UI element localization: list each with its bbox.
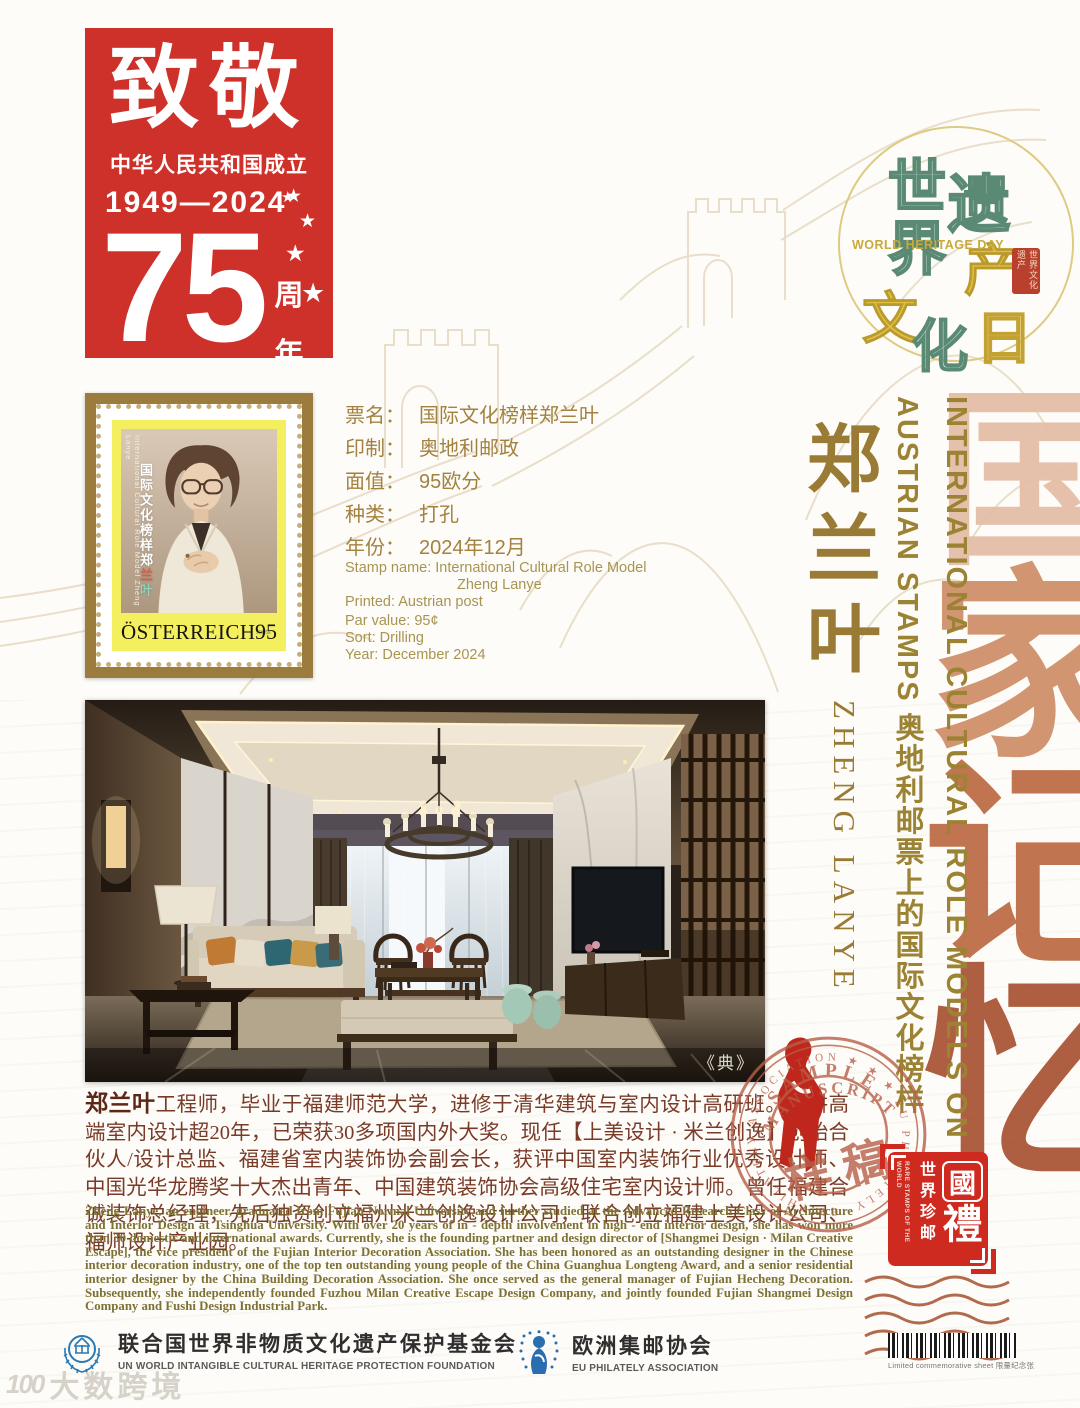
info-line: Printed: Austrian post xyxy=(345,594,685,611)
info-line: Stamp name: International Cultural Role … xyxy=(345,560,685,577)
info-row: 印制：奥地利邮政 xyxy=(345,433,675,466)
info-line: Par value: 95¢ xyxy=(345,613,685,630)
info-line: Zheng Lanye xyxy=(345,577,685,594)
info-line: Sort: Drilling xyxy=(345,630,685,647)
rare-stamps-badge: RARE STAMPS OF THE WORLD 世界珍邮 國 禮 xyxy=(888,1152,988,1266)
commemorative-stamp-poster: 国 家 记 忆 致敬 中华人民共和国成立 1949—2024★ 75 周 年 ★… xyxy=(0,0,1080,1408)
org-eu-philately: 欧洲集邮协会 EU PHILATELY ASSOCIATION xyxy=(518,1330,718,1378)
heritage-char: 化 xyxy=(912,302,968,383)
heritage-subtitle: WORLD HERITAGE DAY xyxy=(852,238,1004,252)
eu-philately-logo-icon xyxy=(518,1330,560,1378)
stamp-country-row: ÖSTERREICH 95 xyxy=(121,613,277,651)
barcode xyxy=(888,1333,1016,1358)
heritage-char: 日 xyxy=(976,294,1032,375)
watermark-text: 大数跨境 xyxy=(49,1362,185,1406)
badge-unit: 周 年 xyxy=(275,272,304,372)
badge-char-guo: 國 xyxy=(942,1161,983,1202)
badge-number-row: 75 周 年 xyxy=(85,214,333,372)
bio-name-zh: 郑兰叶 xyxy=(85,1091,156,1116)
info-row: 种类：打孔 xyxy=(345,499,675,532)
badge-main-chars: 國 禮 xyxy=(942,1161,983,1257)
artist-name-en: ZHENG LANYE xyxy=(826,700,862,995)
watermark-logo: 100 xyxy=(6,1369,43,1400)
star-icon: ★ xyxy=(281,188,294,206)
stamp-portrait: International Cultural Role Model Zheng … xyxy=(121,429,277,613)
badge-char-li: 禮 xyxy=(943,1205,983,1245)
stamp-info-zh: 票名：国际文化榜样郑兰叶 印制：奥地利邮政 面值：95欧分 种类：打孔 年份：2… xyxy=(345,400,675,565)
stamp-country: ÖSTERREICH xyxy=(121,620,256,645)
info-line: Year: December 2024 xyxy=(345,647,685,664)
barcode-block: Limited commemorative sheet 限量纪念张 xyxy=(888,1333,1038,1371)
star-icon: ★ xyxy=(301,278,325,309)
bio-paragraph-en: Zheng Lanye, an engineer, graduated from… xyxy=(85,1205,853,1314)
stamp-info-en: Stamp name: International Cultural Role … xyxy=(345,560,685,664)
site-watermark: 100 大数跨境 xyxy=(6,1362,185,1406)
headline-line1: INTERNATIONAL CULTURAL ROLE MODELS ON xyxy=(939,396,972,1146)
org2-name-zh: 欧洲集邮协会 xyxy=(572,1330,718,1360)
corner-mark-icon xyxy=(970,1248,985,1263)
austrian-stamp: International Cultural Role Model Zheng … xyxy=(85,393,313,678)
corner-mark-icon xyxy=(891,1155,906,1170)
badge-title: 致敬 xyxy=(85,44,333,134)
info-row: 票名：国际文化榜样郑兰叶 xyxy=(345,400,675,433)
badge-text-en: RARE STAMPS OF THE WORLD xyxy=(894,1161,910,1255)
heritage-red-seal: 世界文化遗产 xyxy=(1012,248,1040,294)
stamp-perforation: International Cultural Role Model Zheng … xyxy=(96,404,302,667)
living-room-scene xyxy=(85,700,765,1082)
badge-number-75: 75 xyxy=(101,214,263,372)
barcode-caption: Limited commemorative sheet 限量纪念张 xyxy=(888,1360,1038,1371)
stamp-yellow-frame: International Cultural Role Model Zheng … xyxy=(112,420,286,651)
stamp-denomination: 95 xyxy=(255,619,277,645)
info-row: 面值：95欧分 xyxy=(345,466,675,499)
anniversary-75-badge: 致敬 中华人民共和国成立 1949—2024★ 75 周 年 ★ ★ ★ ★ xyxy=(85,28,333,358)
org2-name-en: EU PHILATELY ASSOCIATION xyxy=(572,1363,718,1374)
stamp-side-text-zh: 国际文化榜样郑兰叶 xyxy=(136,463,155,598)
world-heritage-day-logo: 世 界 文 化 遗 产 日 WORLD HERITAGE DAY 世界文化遗产 xyxy=(836,126,1080,362)
star-icon: ★ xyxy=(285,240,306,267)
star-icon: ★ xyxy=(299,210,316,233)
heritage-char: 文 xyxy=(862,274,918,355)
badge-text-zh: 世界珍邮 xyxy=(913,1161,937,1255)
artist-name-zh: 郑兰叶 xyxy=(798,415,890,685)
badge-subtitle: 中华人民共和国成立 xyxy=(85,149,333,179)
org1-name-zh: 联合国世界非物质文化遗产保护基金会 xyxy=(118,1328,518,1358)
interior-design-photo: 《典》 xyxy=(85,700,765,1082)
